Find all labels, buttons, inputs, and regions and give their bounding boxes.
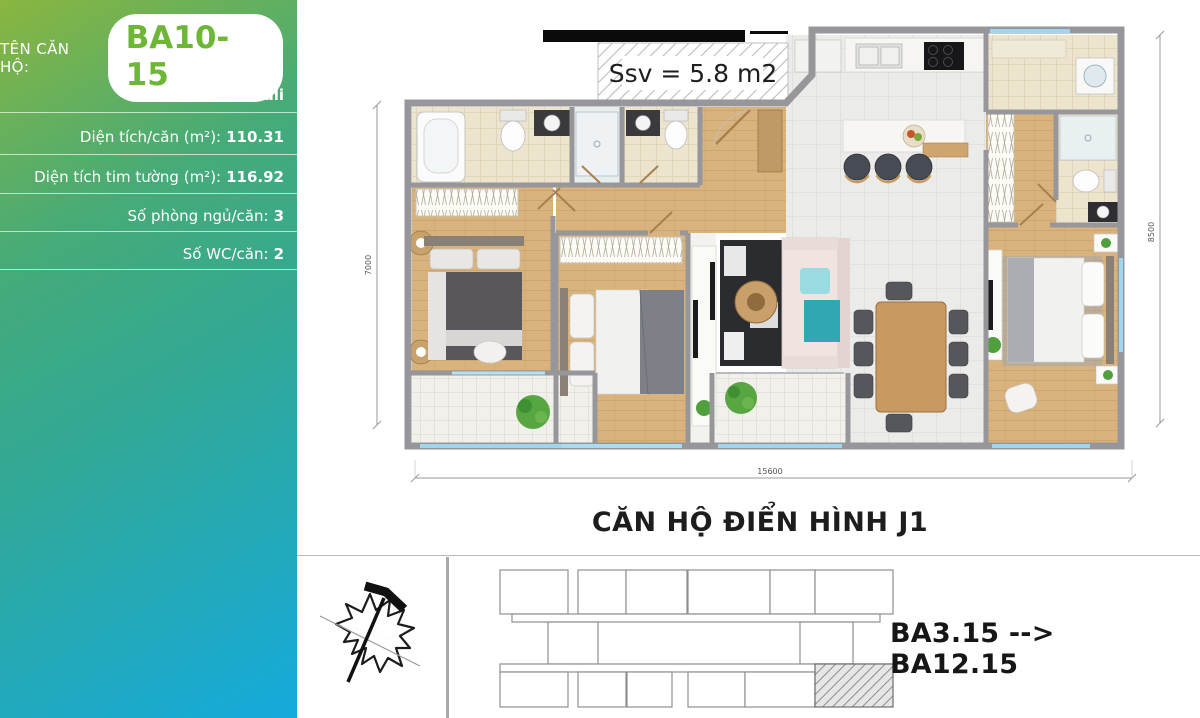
divider: [0, 231, 297, 232]
dim-left-label: 7000: [364, 255, 373, 275]
block-value: Bali: [252, 86, 284, 104]
plan-caption: CĂN HỘ ĐIỂN HÌNH J1: [340, 507, 1180, 538]
wall-area-value: 116.92: [226, 168, 284, 186]
top-black-bar: [543, 30, 745, 42]
unit-info-sidebar: TÊN CĂN HỘ: BA10-15 Khối nhà:Bali Diện t…: [0, 0, 297, 718]
area-row: Diện tích/căn (m²):110.31: [0, 125, 297, 149]
divider: [0, 154, 297, 155]
divider: [0, 269, 297, 270]
footer-divider: [297, 555, 1200, 556]
divider: [0, 112, 297, 113]
page: TÊN CĂN HỘ: BA10-15 Khối nhà:Bali Diện t…: [0, 0, 1200, 718]
dim-bottom-label: 15600: [757, 467, 782, 476]
floor-plan: Ssv = 5.8 m2: [340, 18, 1180, 504]
area-value: 110.31: [226, 128, 284, 146]
top-thin-bar: [750, 31, 788, 34]
wc-value: 2: [274, 245, 284, 263]
ssv-area: Ssv = 5.8 m2: [543, 30, 788, 103]
bedrooms-value: 3: [274, 207, 284, 225]
block-label: Khối nhà:: [176, 86, 247, 104]
block-row: Khối nhà:Bali: [0, 83, 297, 107]
corridor-floor: [556, 185, 786, 233]
wall-area-row: Diện tích tim tường (m²):116.92: [0, 165, 297, 189]
ssv-label: Ssv = 5.8 m2: [609, 59, 778, 88]
wc-label: Số WC/căn:: [183, 245, 269, 263]
highlighted-unit: [815, 664, 893, 707]
divider: [0, 193, 297, 194]
wc-row: Số WC/căn:2: [0, 242, 297, 266]
wall-area-label: Diện tích tim tường (m²):: [34, 168, 221, 186]
unit-range-label: BA3.15 --> BA12.15: [890, 618, 1190, 680]
unit-name-label: TÊN CĂN HỘ:: [0, 40, 99, 76]
dim-right-label: 8500: [1147, 222, 1156, 242]
footer-vertical-divider: [446, 557, 449, 718]
north-arrow-icon: [308, 572, 438, 712]
bedrooms-row: Số phòng ngủ/căn:3: [0, 204, 297, 228]
area-label: Diện tích/căn (m²):: [80, 128, 221, 146]
bedrooms-label: Số phòng ngủ/căn:: [128, 207, 269, 225]
